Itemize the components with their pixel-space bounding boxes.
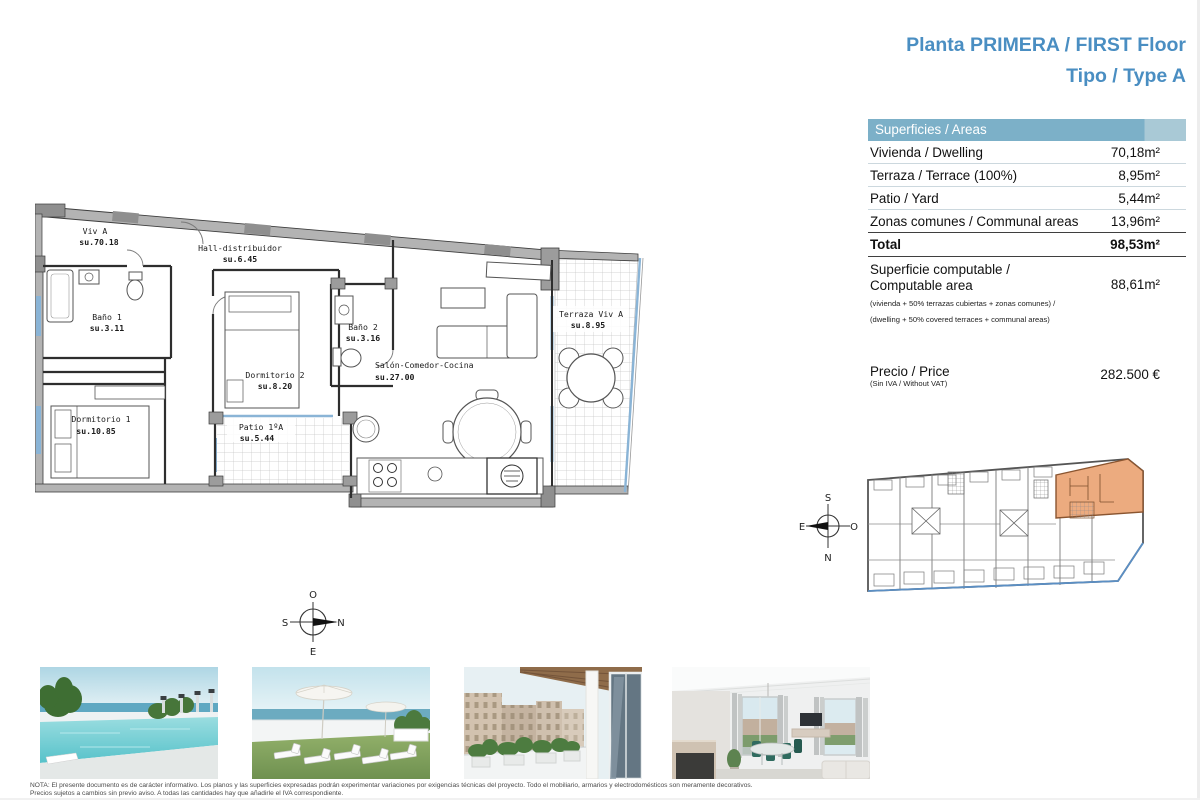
brochure-page: { "header": { "title_line1": "Planta PRI… (0, 0, 1200, 800)
photo-living-room (672, 667, 870, 779)
page-title: Planta PRIMERA / FIRST Floor Tipo / Type… (766, 30, 1186, 92)
disclaimer-line2: Precios sujetos a cambios sin previo avi… (30, 790, 1190, 798)
sideboard (792, 729, 830, 737)
areas-table-header: Superficies / Areas (868, 119, 1186, 141)
areas-table: Superficies / Areas Vivienda / Dwelling … (868, 119, 1186, 388)
room-label-banio2: Baño 2su.3.16 (346, 322, 381, 343)
svg-text:Patio 1ºA: Patio 1ºA (239, 422, 283, 432)
svg-text:Hall-distribuidor: Hall-distribuidor (198, 243, 282, 253)
sideboard-icon (486, 262, 551, 280)
bathtub-icon (47, 270, 73, 322)
svg-text:Baño 2: Baño 2 (348, 322, 378, 332)
terrace-table-icon (559, 348, 623, 408)
row-label: Zonas comunes / Communal areas (870, 214, 1078, 229)
room-label-banio1: Baño 1su.3.11 (90, 312, 125, 333)
compass-letter-top: O (309, 590, 317, 601)
plant-icon (727, 749, 741, 769)
row-value: 8,95m² (1118, 168, 1186, 183)
room-label-hall: Hall-distribuidorsu.6.45 (198, 243, 282, 264)
svg-text:Salón-Comedor-Cocina: Salón-Comedor-Cocina (375, 360, 474, 370)
svg-text:su.10.85: su.10.85 (76, 426, 116, 436)
compass-letter-right: N (337, 618, 344, 629)
computable-note-line2: (dwelling + 50% covered terraces + commu… (870, 312, 1055, 328)
compass-letter-left: S (282, 618, 288, 629)
svg-text:Dormitorio 1: Dormitorio 1 (71, 414, 130, 424)
table-row: Vivienda / Dwelling 70,18m² (868, 141, 1186, 164)
svg-text:su.3.16: su.3.16 (346, 333, 381, 343)
elevator-core-icon (948, 472, 964, 494)
site-plan-overview (860, 450, 1150, 600)
total-label: Total (870, 237, 901, 252)
room-label-viv-a: Viv Asu.70.18 (79, 226, 119, 247)
table-row: Patio / Yard 5,44m² (868, 187, 1186, 210)
closet-icon (95, 386, 165, 399)
sofa-icon (822, 761, 870, 779)
computable-label-line2: Computable area (870, 278, 1055, 294)
disclaimer: NOTA: El presente documento es de caráct… (30, 782, 1190, 799)
price-note: (Sin IVA / Without VAT) (870, 379, 950, 388)
compass-letter-bottom: E (310, 647, 316, 658)
row-value: 13,96m² (1111, 214, 1186, 229)
compass-rose-main: O S N E (278, 586, 348, 658)
computable-area-block: Superficie computable / Computable area … (868, 262, 1186, 328)
svg-text:su.8.20: su.8.20 (258, 381, 293, 391)
compass-rose-siteplan: S E O N (798, 492, 858, 564)
row-label: Vivienda / Dwelling (870, 145, 983, 160)
total-value: 98,53m² (1110, 237, 1186, 252)
photo-roof-terrace (252, 667, 430, 779)
total-row: Total 98,53m² (868, 233, 1186, 257)
table-row: Zonas comunes / Communal areas 13,96m² (868, 210, 1186, 233)
row-label: Patio / Yard (870, 191, 939, 206)
price-label: Precio / Price (870, 364, 950, 379)
photo-strip (0, 667, 1200, 779)
boiler-inner (357, 420, 375, 438)
sink2-icon (335, 296, 353, 324)
price-block: Precio / Price (Sin IVA / Without VAT) 2… (868, 364, 1186, 388)
svg-text:Terraza Viv A: Terraza Viv A (559, 309, 623, 319)
computable-note-line1: (vivienda + 50% terrazas cubiertas + zon… (870, 296, 1055, 312)
pillar-icon (586, 671, 598, 779)
svg-text:su.6.45: su.6.45 (223, 254, 258, 264)
kitchen-island-icon (672, 741, 716, 779)
row-value: 70,18m² (1111, 145, 1186, 160)
compass-letter-bottom: N (824, 553, 831, 564)
row-label: Terraza / Terrace (100%) (870, 168, 1017, 183)
elevator-core-icon (1034, 480, 1048, 498)
row-value: 5,44m² (1118, 191, 1186, 206)
disclaimer-line1: NOTA: El presente documento es de caráct… (30, 782, 1190, 790)
tv-icon (800, 713, 822, 726)
svg-text:su.70.18: su.70.18 (79, 237, 119, 247)
svg-text:su.3.11: su.3.11 (90, 323, 125, 333)
page-title-line1: Planta PRIMERA / FIRST Floor (766, 30, 1186, 61)
room-label-salon: Salón-Comedor-Cocinasu.27.00 (375, 360, 474, 382)
sink-icon (79, 270, 99, 284)
kitchen-sink-icon (428, 467, 442, 481)
svg-text:su.5.44: su.5.44 (240, 433, 275, 443)
svg-text:su.27.00: su.27.00 (375, 372, 415, 382)
table-row: Terraza / Terrace (100%) 8,95m² (868, 164, 1186, 187)
compass-letter-right: O (850, 522, 858, 533)
toilet-icon (127, 272, 143, 300)
svg-text:su.8.95: su.8.95 (571, 320, 606, 330)
photo-rooftop-pool (40, 667, 218, 779)
tv-table-icon (441, 288, 485, 308)
svg-text:Baño 1: Baño 1 (92, 312, 122, 322)
svg-text:Dormitorio 2: Dormitorio 2 (245, 370, 304, 380)
photo-balcony-view (464, 667, 642, 779)
compass-letter-left: E (799, 522, 805, 533)
svg-text:Viv A: Viv A (83, 226, 108, 236)
price-value: 282.500 € (1100, 367, 1186, 388)
washer-icon (487, 458, 537, 494)
page-title-line2: Tipo / Type A (766, 61, 1186, 92)
glass-door-icon (610, 673, 642, 779)
toilet2-icon (333, 348, 361, 367)
computable-label-line1: Superficie computable / (870, 262, 1055, 278)
computable-value: 88,61m² (1111, 277, 1186, 328)
compass-letter-top: S (825, 493, 831, 504)
floor-plan: Viv Asu.70.18 Hall-distribuidorsu.6.45 B… (35, 200, 650, 510)
